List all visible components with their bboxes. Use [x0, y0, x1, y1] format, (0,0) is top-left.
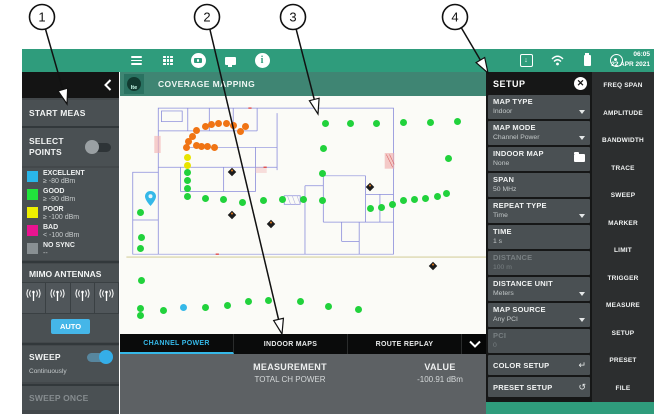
screenshot-icon[interactable]: ↓	[518, 49, 534, 72]
setup-item-label: PCI	[493, 331, 586, 340]
legend-swatch	[27, 243, 38, 254]
map-dot-good	[202, 304, 209, 311]
display-icon[interactable]	[222, 49, 238, 72]
menu-item-measure[interactable]: MEASURE	[592, 292, 654, 320]
map-dot-good	[355, 306, 362, 313]
start-meas-label: START MEAS	[22, 108, 86, 118]
map-dot-good	[160, 307, 167, 314]
antenna-buttons	[22, 282, 119, 313]
menu-item-file[interactable]: FILE	[592, 375, 654, 403]
map-dot-good	[434, 193, 441, 200]
legend-swatch	[27, 225, 38, 236]
setup-item-value: Indoor	[493, 108, 586, 115]
menu-item-bandwidth[interactable]: BANDWIDTH	[592, 127, 654, 155]
top-status-bar: i ↓ 06:05 22 APR 2021	[22, 49, 654, 72]
setup-item-value: 100 m	[493, 264, 586, 271]
page-title: COVERAGE MAPPING	[158, 79, 255, 89]
setup-item-indoor-map[interactable]: INDOOR MAP None	[488, 147, 590, 171]
map-dot-good	[325, 303, 332, 310]
map-dot-good	[245, 298, 252, 305]
apps-grid-icon[interactable]	[160, 49, 176, 72]
setup-panel-title: SETUP	[493, 79, 526, 89]
legend-item-bad: BAD< -100 dBm	[27, 224, 119, 240]
map-direction-marker	[228, 211, 236, 219]
chevron-down-icon	[579, 292, 585, 296]
map-dot-good	[184, 169, 191, 176]
map-dot-good	[367, 205, 374, 212]
setup-item-label: DISTANCE UNIT	[493, 279, 586, 288]
info-icon[interactable]: i	[254, 49, 270, 72]
map-dot-excellent	[180, 304, 187, 311]
wifi-icon[interactable]	[548, 49, 566, 72]
setup-item-label: MAP MODE	[493, 123, 586, 132]
setup-action-label: PRESET SETUP	[493, 383, 553, 392]
callout-circle-2	[195, 5, 220, 30]
map-dot-good	[184, 193, 191, 200]
callout-circle-3	[281, 5, 306, 30]
tab-route-replay[interactable]: ROUTE REPLAY	[348, 334, 462, 354]
menu-item-trace[interactable]: TRACE	[592, 155, 654, 183]
legend-threshold: ≥ -100 dBm	[43, 214, 79, 221]
sweep-once-button[interactable]: SWEEP ONCE	[22, 384, 119, 410]
setup-item-label: INDOOR MAP	[493, 149, 586, 158]
clock: 06:05 22 APR 2021	[611, 50, 650, 70]
map-dot-poor	[184, 154, 191, 161]
tab-channel-power[interactable]: CHANNEL POWER	[120, 334, 234, 354]
reset-icon: ↺	[578, 382, 586, 393]
clock-date: 22 APR 2021	[611, 60, 650, 70]
setup-item-value: Channel Power	[493, 134, 586, 141]
select-points-row: SELECT POINTS	[22, 128, 119, 166]
setup-item-label: MAP SOURCE	[493, 305, 586, 314]
map-dot-good	[378, 204, 385, 211]
clock-time: 06:05	[611, 50, 650, 60]
antenna-icon	[74, 289, 91, 307]
bottom-accent-bar	[486, 402, 654, 414]
legend-threshold: --	[43, 250, 48, 257]
setup-item-value: Time	[493, 212, 586, 219]
collapse-left-icon[interactable]	[104, 78, 112, 96]
setup-item-distance: DISTANCE 100 m	[488, 251, 590, 275]
measurement-column-header: MEASUREMENT	[200, 362, 380, 372]
setup-item-value: None	[493, 160, 586, 167]
map-dot-good	[319, 170, 326, 177]
map-dot-good	[279, 196, 286, 203]
map-dot-good	[137, 312, 144, 319]
legend-item-excellent: EXCELLENT≥ -80 dBm	[27, 170, 119, 186]
setup-item-value: 50 MHz	[493, 186, 586, 193]
map-dot-good	[300, 196, 307, 203]
sweep-once-label: SWEEP ONCE	[22, 393, 88, 403]
sweep-mode-value: Continuously	[22, 368, 119, 375]
screenshot-stage: i ↓ 06:05 22 APR 2021 START MEAS SELECT …	[0, 0, 654, 414]
map-dot-weak	[215, 120, 222, 127]
chevron-down-icon	[579, 110, 585, 114]
map-direction-marker	[228, 168, 236, 176]
antenna-icon	[98, 289, 115, 307]
chevron-down-icon	[579, 136, 585, 140]
map-dot-good	[319, 197, 326, 204]
legend-label: NO SYNC	[43, 242, 75, 249]
setup-item-value: Any PCI	[493, 316, 586, 323]
setup-panel: SETUP ✕ MAP TYPE IndoorMAP MODE Channel …	[486, 72, 592, 402]
map-dot-good	[320, 145, 327, 152]
setup-item-value: 1 s	[493, 238, 586, 245]
lte-badge-icon: lte	[124, 74, 144, 94]
map-dot-weak	[237, 128, 244, 135]
setup-item-span[interactable]: SPAN 50 MHz	[488, 173, 590, 197]
start-meas-button[interactable]: START MEAS	[22, 100, 119, 126]
map-dot-good	[137, 245, 144, 252]
legend-swatch	[27, 171, 38, 182]
coverage-legend: EXCELLENT≥ -80 dBm GOOD≥ -90 dBm POOR≥ -…	[22, 168, 119, 260]
legend-swatch	[27, 189, 38, 200]
map-dot-good	[184, 177, 191, 184]
menu-icon[interactable]	[128, 49, 144, 72]
callout-number-1: 1	[38, 10, 45, 25]
map-dot-weak	[211, 144, 218, 151]
map-dot-good	[347, 120, 354, 127]
map-dot-good	[427, 119, 434, 126]
map-dot-good	[202, 195, 209, 202]
map-dot-good	[400, 119, 407, 126]
map-direction-marker	[267, 220, 275, 228]
menu-item-sweep[interactable]: SWEEP	[592, 182, 654, 210]
map-dot-good	[454, 118, 461, 125]
menu-item-freq-span[interactable]: FREQ SPAN	[592, 72, 654, 100]
menu-item-amplitude[interactable]: AMPLITUDE	[592, 100, 654, 128]
mimo-antennas-label: MIMO ANTENNAS	[22, 264, 119, 282]
chevron-down-icon	[579, 318, 585, 322]
map-dot-good	[260, 197, 267, 204]
legend-item-poor: POOR≥ -100 dBm	[27, 206, 119, 222]
antenna-button-2[interactable]	[46, 283, 70, 313]
map-dot-good	[443, 190, 450, 197]
setup-item-value: 0	[493, 342, 586, 349]
map-dot-good	[322, 120, 329, 127]
callout-circle-1	[30, 5, 55, 30]
return-icon: ↵	[578, 360, 586, 371]
setup-item-label: TIME	[493, 227, 586, 236]
antenna-button-1[interactable]	[22, 283, 46, 313]
legend-swatch	[27, 207, 38, 218]
legend-threshold: ≥ -90 dBm	[43, 196, 75, 203]
map-dot-weak	[208, 121, 215, 128]
map-dot-good	[373, 120, 380, 127]
menu-item-setup[interactable]: SETUP	[592, 320, 654, 348]
map-dot-good	[224, 302, 231, 309]
measurement-name: TOTAL CH POWER	[200, 375, 380, 384]
setup-item-pci: PCI 0	[488, 329, 590, 353]
map-dot-good	[138, 234, 145, 241]
map-dot-good	[422, 195, 429, 202]
callout-number-3: 3	[289, 10, 296, 25]
map-direction-marker	[366, 183, 374, 191]
setup-item-distance-unit[interactable]: DISTANCE UNIT Meters	[488, 277, 590, 301]
legend-label: EXCELLENT	[43, 170, 85, 177]
setup-item-repeat-type[interactable]: REPEAT TYPE Time	[488, 199, 590, 223]
folder-icon	[574, 154, 585, 162]
setup-item-time[interactable]: TIME 1 s	[488, 225, 590, 249]
mimo-antennas-section: MIMO ANTENNAS AUTO	[22, 264, 119, 342]
callout-circle-4	[443, 5, 468, 30]
tab-indoor-maps[interactable]: INDOOR MAPS	[234, 334, 348, 354]
auto-button[interactable]: AUTO	[51, 319, 90, 334]
menu-item-marker[interactable]: MARKER	[592, 210, 654, 238]
setup-item-map-source[interactable]: MAP SOURCE Any PCI	[488, 303, 590, 327]
menu-item-trigger[interactable]: TRIGGER	[592, 265, 654, 293]
map-dot-weak	[230, 122, 237, 129]
main-menu-rail: FREQ SPANAMPLITUDEBANDWIDTHTRACESWEEPMAR…	[592, 72, 654, 402]
map-dot-good	[184, 185, 191, 192]
callout-number-2: 2	[203, 10, 210, 25]
antenna-button-3[interactable]	[71, 283, 95, 313]
left-sidebar: START MEAS SELECT POINTS EXCELLENT≥ -80 …	[22, 72, 119, 414]
legend-item-good: GOOD≥ -90 dBm	[27, 188, 119, 204]
menu-item-limit[interactable]: LIMIT	[592, 237, 654, 265]
setup-panel-header: SETUP ✕	[486, 72, 592, 95]
sidebar-header	[22, 72, 119, 98]
map-dot-good	[137, 305, 144, 312]
close-icon[interactable]: ✕	[574, 77, 587, 90]
expand-results-button[interactable]	[462, 334, 487, 354]
map-dot-good	[445, 155, 452, 162]
map-dot-good	[297, 298, 304, 305]
sweep-toggle[interactable]	[87, 353, 111, 362]
map-dot-good	[138, 277, 145, 284]
menu-item-preset[interactable]: PRESET	[592, 347, 654, 375]
setup-item-label: MAP TYPE	[493, 97, 586, 106]
battery-icon	[580, 49, 594, 72]
select-points-toggle[interactable]	[87, 143, 111, 152]
setup-action-label: COLOR SETUP	[493, 361, 549, 370]
setup-item-label: SPAN	[493, 175, 586, 184]
setup-item-map-mode[interactable]: MAP MODE Channel Power	[488, 121, 590, 145]
map-pin-icon	[145, 191, 156, 206]
legend-threshold: ≥ -80 dBm	[43, 178, 75, 185]
sweep-section: SWEEP Continuously	[22, 346, 119, 382]
setup-item-label: DISTANCE	[493, 253, 586, 262]
legend-label: GOOD	[43, 188, 64, 195]
map-direction-marker	[429, 262, 437, 270]
setup-item-value: Meters	[493, 290, 586, 297]
map-dot-weak	[223, 120, 230, 127]
chevron-down-icon	[579, 214, 585, 218]
sweep-label: SWEEP	[22, 352, 61, 362]
legend-label: BAD	[43, 224, 58, 231]
setup-action-color-setup[interactable]: COLOR SETUP ↵	[488, 355, 590, 375]
legend-label: POOR	[43, 206, 64, 213]
map-dot-good	[265, 297, 272, 304]
map-dot-good	[220, 196, 227, 203]
legend-item-no-sync: NO SYNC--	[27, 242, 119, 258]
camera-icon[interactable]	[190, 49, 206, 72]
map-dot-good	[389, 201, 396, 208]
setup-item-map-type[interactable]: MAP TYPE Indoor	[488, 95, 590, 119]
map-dot-good	[411, 196, 418, 203]
select-points-label: SELECT POINTS	[22, 136, 81, 158]
map-dot-poor	[184, 162, 191, 169]
antenna-icon	[49, 289, 66, 307]
map-dot-good	[400, 197, 407, 204]
setup-item-label: REPEAT TYPE	[493, 201, 586, 210]
map-dot-weak	[204, 143, 211, 150]
setup-action-preset-setup[interactable]: PRESET SETUP ↺	[488, 377, 590, 397]
map-dot-good	[239, 199, 246, 206]
callout-number-4: 4	[451, 10, 458, 25]
legend-threshold: < -100 dBm	[43, 232, 79, 239]
antenna-icon	[25, 289, 42, 307]
map-dot-weak	[183, 144, 190, 151]
map-dot-good	[137, 209, 144, 216]
antenna-button-4[interactable]	[95, 283, 119, 313]
